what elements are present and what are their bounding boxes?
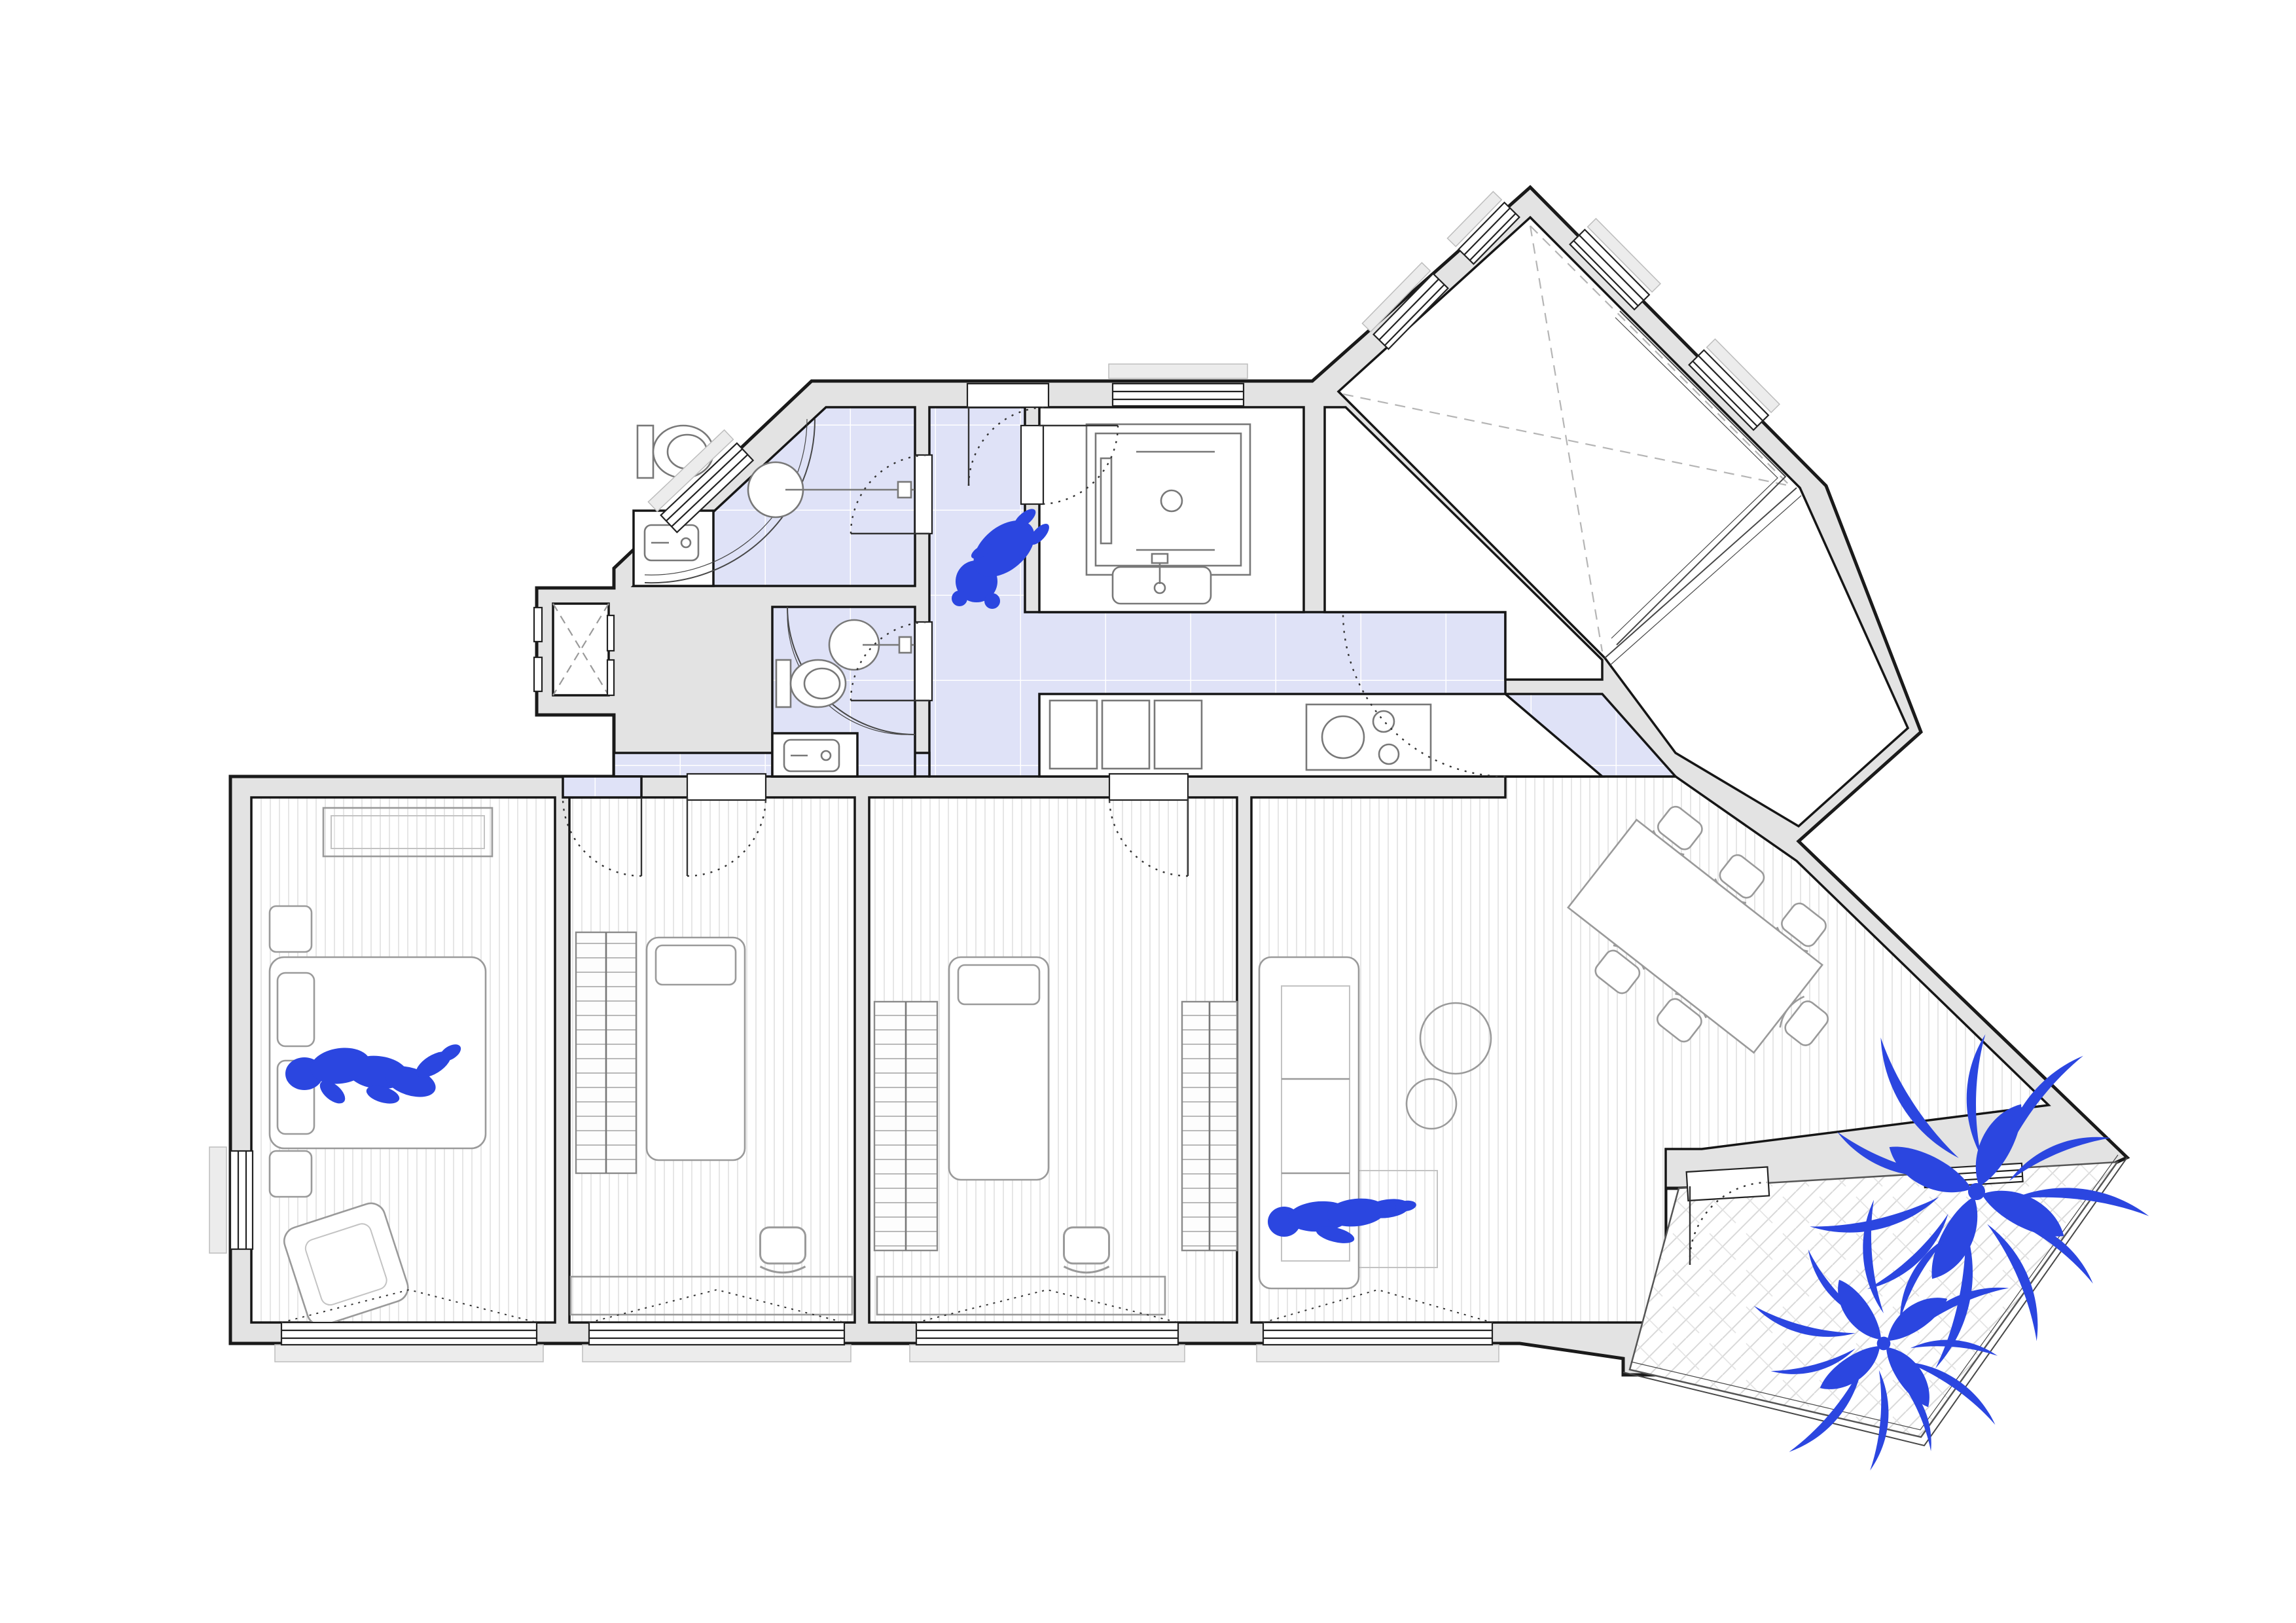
elevator-shaft-window bbox=[534, 608, 542, 642]
washing-machine bbox=[1086, 424, 1250, 575]
floor-plan-canvas bbox=[0, 0, 2296, 1623]
elevator-shaft-window bbox=[534, 657, 542, 691]
sink-rect bbox=[645, 525, 698, 560]
nightstand bbox=[270, 1151, 312, 1197]
sink-rect bbox=[784, 740, 839, 771]
floor-plan-page bbox=[0, 0, 2296, 1623]
pillow bbox=[278, 973, 314, 1046]
pillow bbox=[958, 965, 1039, 1004]
elevator-door-panel bbox=[607, 660, 614, 695]
toilet bbox=[776, 660, 846, 707]
window bbox=[1109, 364, 1247, 406]
window bbox=[209, 1147, 253, 1253]
nightstand bbox=[270, 906, 312, 952]
elevator-door-panel bbox=[607, 615, 614, 651]
kitchen-counter-strip bbox=[1039, 694, 1602, 776]
room-terrace bbox=[1630, 1162, 2117, 1437]
pillow bbox=[656, 945, 736, 985]
master-doorway-patch bbox=[563, 776, 641, 797]
